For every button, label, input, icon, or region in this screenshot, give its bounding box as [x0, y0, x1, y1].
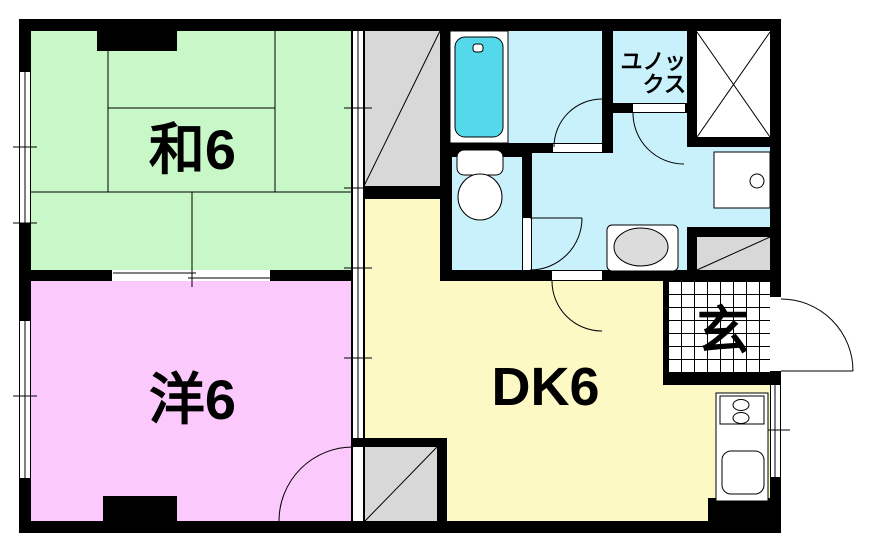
wall-closet-lower-top: [351, 438, 447, 447]
wall-toilet-right: [522, 157, 532, 218]
dk-label: DK6: [458, 356, 633, 418]
room-toilet: [440, 148, 532, 281]
door-entrance-gap: [770, 297, 781, 371]
wall-pipespace-left: [687, 227, 697, 281]
wall-shaft-bottom: [687, 137, 781, 147]
floor-plan: 和6 洋6 DK6 玄 ユノックス: [0, 0, 872, 555]
genkan-label: 玄: [690, 302, 756, 362]
shaft-box: [687, 22, 781, 147]
closet-lower: [364, 447, 437, 522]
pipe-space: [697, 237, 770, 270]
door-toilet: [522, 218, 532, 270]
sliding-partition: [351, 31, 365, 438]
door-bathroom: [553, 143, 602, 153]
closet-upper: [364, 31, 440, 186]
wall-toilet-top: [440, 148, 532, 157]
pillar-bottom: [103, 496, 177, 521]
window-western: [19, 321, 31, 478]
wall-closet-upper-bottom: [364, 186, 448, 199]
window-washitsu: [19, 72, 31, 223]
wall-genkan-bottom: [663, 373, 781, 385]
western-label: 洋6: [120, 368, 265, 432]
unitbath-label: ユノックス: [612, 50, 686, 96]
pillar-top: [97, 20, 177, 51]
wall-corner-kitchen: [708, 498, 781, 533]
window-kitchen: [770, 385, 781, 477]
wall-bottom: [19, 521, 781, 533]
door-unitbath: [633, 103, 685, 113]
washitsu-label: 和6: [120, 118, 265, 182]
wall-pipespace-top: [687, 227, 770, 237]
western-door-leaf: [351, 447, 365, 522]
wall-shaft-left: [687, 22, 697, 147]
sliding-door-washitsu-western: [112, 270, 270, 281]
wall-closet-lower-right: [437, 447, 447, 523]
wall-washroom-bottom: [440, 270, 781, 281]
wall-genkan-left: [663, 281, 668, 373]
entrance-door-arc: [781, 299, 853, 371]
door-washroom-dk: [552, 270, 602, 281]
